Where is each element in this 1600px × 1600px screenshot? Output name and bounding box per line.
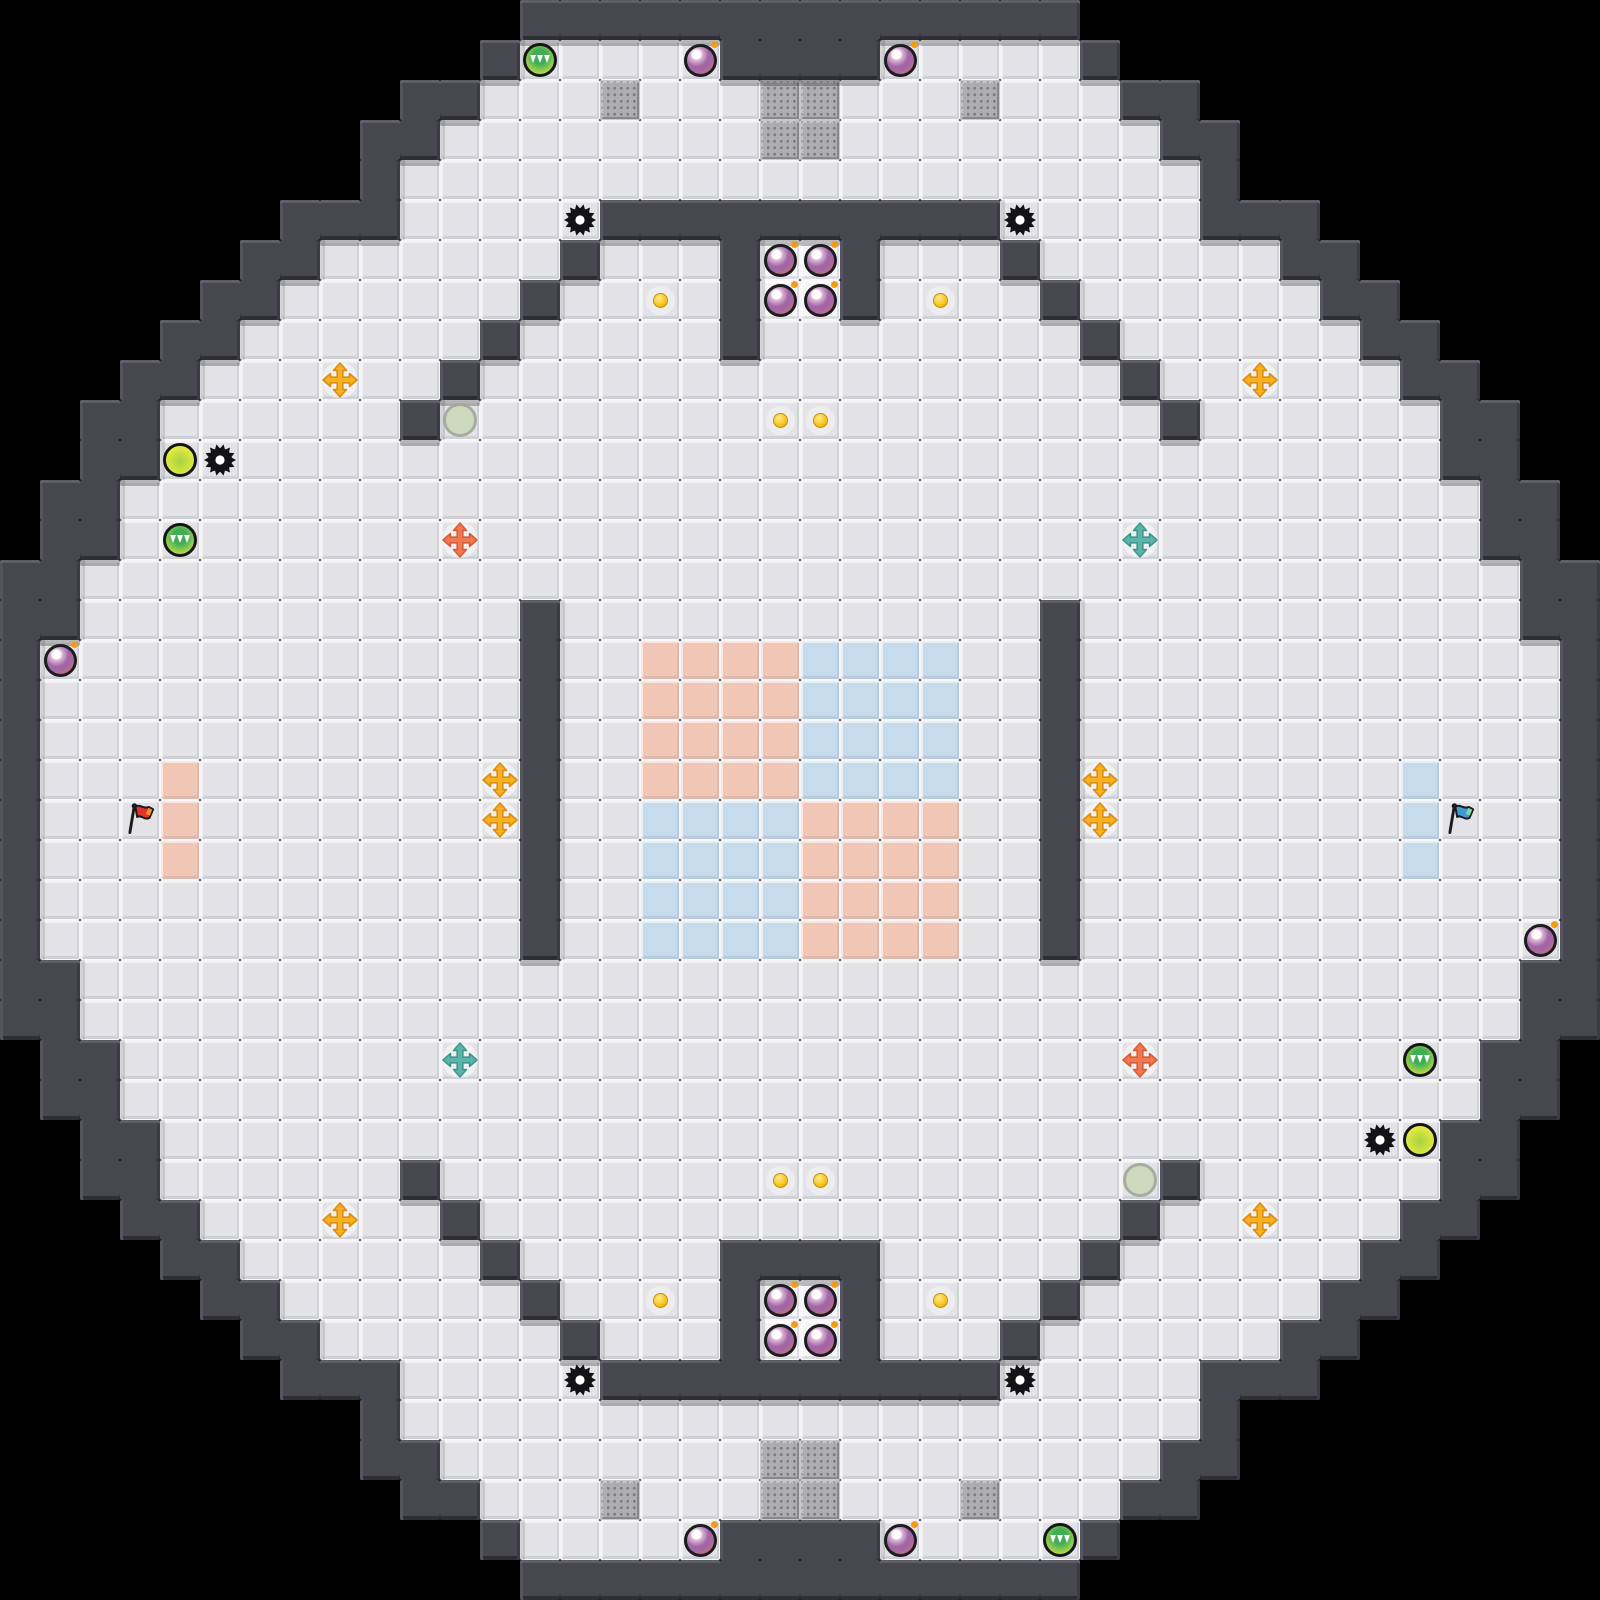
floor-tile xyxy=(1240,1160,1280,1200)
yellow-dot[interactable] xyxy=(760,400,800,440)
floor-tile xyxy=(680,320,720,360)
floor-tile xyxy=(840,1120,880,1160)
floor-tile xyxy=(1480,760,1520,800)
floor-tile xyxy=(720,80,760,120)
floor-tile xyxy=(1000,880,1040,920)
floor-tile xyxy=(160,960,200,1000)
blue-flag-icon[interactable] xyxy=(1440,800,1480,840)
floor-tile xyxy=(1120,1320,1160,1360)
floor-tile xyxy=(680,1240,720,1280)
floor-tile xyxy=(1400,880,1440,920)
floor-tile xyxy=(560,560,600,600)
floor-tile xyxy=(560,1520,600,1560)
wall-tile xyxy=(240,1280,280,1320)
floor-tile xyxy=(200,1080,240,1120)
floor-tile xyxy=(160,1080,200,1120)
powerup-yellow-icon[interactable] xyxy=(1400,1120,1440,1160)
floor-tile xyxy=(1000,520,1040,560)
floor-tile xyxy=(320,1120,360,1160)
floor-tile xyxy=(1000,480,1040,520)
floor-tile xyxy=(280,1280,320,1320)
floor-tile xyxy=(1200,1120,1240,1160)
wall-tile xyxy=(120,440,160,480)
wall-tile xyxy=(80,480,120,520)
floor-tile xyxy=(1120,920,1160,960)
bomb-icon[interactable] xyxy=(760,1280,800,1320)
floor-tile xyxy=(680,360,720,400)
floor-tile xyxy=(320,480,360,520)
bomb-icon[interactable] xyxy=(760,1320,800,1360)
powerup-grip-icon[interactable] xyxy=(1400,1040,1440,1080)
floor-tile xyxy=(840,80,880,120)
red-team-tile xyxy=(640,680,680,720)
floor-tile xyxy=(80,760,120,800)
floor-tile xyxy=(160,400,200,440)
floor-tile xyxy=(80,680,120,720)
floor-tile xyxy=(1040,440,1080,480)
wall-tile xyxy=(1440,360,1480,400)
floor-tile xyxy=(1360,960,1400,1000)
wall-tile xyxy=(40,960,80,1000)
floor-tile xyxy=(1040,40,1080,80)
bomb-icon[interactable] xyxy=(680,40,720,80)
wall-tile xyxy=(840,0,880,40)
powerup-grip-icon[interactable] xyxy=(520,40,560,80)
boost-icon-yellow[interactable] xyxy=(1080,800,1120,840)
boost-icon-yellow[interactable] xyxy=(1240,1200,1280,1240)
floor-tile xyxy=(600,640,640,680)
wall-tile xyxy=(760,1520,800,1560)
wall-tile xyxy=(800,40,840,80)
floor-tile xyxy=(720,1440,760,1480)
powerup-grip-icon[interactable] xyxy=(160,520,200,560)
floor-tile xyxy=(720,600,760,640)
wall-tile xyxy=(1480,520,1520,560)
floor-tile xyxy=(760,1400,800,1440)
wall-tile xyxy=(1040,800,1080,840)
floor-tile xyxy=(840,1400,880,1440)
floor-tile xyxy=(1120,440,1160,480)
floor-tile xyxy=(880,360,920,400)
wall-tile xyxy=(320,1360,360,1400)
red-flag-icon[interactable] xyxy=(120,800,160,840)
wall-tile xyxy=(1200,1440,1240,1480)
gate-tile xyxy=(760,1480,800,1520)
floor-tile xyxy=(960,1440,1000,1480)
floor-tile xyxy=(560,840,600,880)
boost-icon-yellow[interactable] xyxy=(480,760,520,800)
wall-tile xyxy=(880,1360,920,1400)
floor-tile xyxy=(1120,760,1160,800)
floor-tile xyxy=(720,1160,760,1200)
floor-tile xyxy=(400,1240,440,1280)
floor-tile xyxy=(720,480,760,520)
wall-tile xyxy=(1280,200,1320,240)
floor-tile xyxy=(360,720,400,760)
yellow-dot[interactable] xyxy=(920,280,960,320)
wall-tile xyxy=(1480,1040,1520,1080)
wall-tile xyxy=(600,1360,640,1400)
floor-tile xyxy=(1040,520,1080,560)
wall-tile xyxy=(1560,960,1600,1000)
wall-tile xyxy=(440,1480,480,1520)
floor-tile xyxy=(600,960,640,1000)
floor-tile xyxy=(1240,1240,1280,1280)
boost-icon-yellow[interactable] xyxy=(320,360,360,400)
floor-tile xyxy=(680,480,720,520)
floor-tile xyxy=(320,720,360,760)
floor-tile xyxy=(800,1200,840,1240)
wall-tile xyxy=(1240,1360,1280,1400)
floor-tile xyxy=(440,920,480,960)
wall-tile xyxy=(1040,680,1080,720)
floor-tile xyxy=(1320,1040,1360,1080)
floor-tile xyxy=(600,1440,640,1480)
wall-tile xyxy=(160,1240,200,1280)
blue-team-tile xyxy=(760,800,800,840)
floor-tile xyxy=(40,800,80,840)
wall-tile xyxy=(1160,1160,1200,1200)
wall-tile xyxy=(80,1040,120,1080)
bomb-icon[interactable] xyxy=(760,240,800,280)
floor-tile xyxy=(600,1080,640,1120)
floor-tile xyxy=(1040,1360,1080,1400)
floor-tile xyxy=(1520,840,1560,880)
floor-tile xyxy=(200,960,240,1000)
floor-tile xyxy=(1280,1160,1320,1200)
wall-tile xyxy=(40,520,80,560)
floor-tile xyxy=(200,720,240,760)
red-team-tile xyxy=(720,640,760,680)
floor-tile xyxy=(1480,680,1520,720)
floor-tile xyxy=(240,1200,280,1240)
wall-tile xyxy=(520,640,560,680)
spawn-circle xyxy=(440,400,480,440)
floor-tile xyxy=(320,640,360,680)
wall-tile xyxy=(960,200,1000,240)
floor-tile xyxy=(1240,520,1280,560)
wall-tile xyxy=(360,200,400,240)
floor-tile xyxy=(1480,840,1520,880)
floor-tile xyxy=(480,1040,520,1080)
boost-icon-red[interactable] xyxy=(1120,1040,1160,1080)
wall-tile xyxy=(1560,800,1600,840)
floor-tile xyxy=(560,1200,600,1240)
floor-tile xyxy=(480,600,520,640)
floor-tile xyxy=(480,80,520,120)
wall-tile xyxy=(360,120,400,160)
wall-tile xyxy=(400,80,440,120)
floor-tile xyxy=(1000,560,1040,600)
floor-tile xyxy=(440,840,480,880)
floor-tile xyxy=(1160,1000,1200,1040)
bomb-icon[interactable] xyxy=(1520,920,1560,960)
floor-tile xyxy=(1240,680,1280,720)
floor-tile xyxy=(1160,600,1200,640)
floor-tile xyxy=(80,920,120,960)
floor-tile xyxy=(480,840,520,880)
boost-icon-yellow[interactable] xyxy=(320,1200,360,1240)
bomb-icon[interactable] xyxy=(680,1520,720,1560)
floor-tile xyxy=(320,520,360,560)
floor-tile xyxy=(1080,120,1120,160)
floor-tile xyxy=(1280,600,1320,640)
yellow-dot[interactable] xyxy=(760,1160,800,1200)
floor-tile xyxy=(760,560,800,600)
floor-tile xyxy=(920,520,960,560)
floor-tile xyxy=(960,920,1000,960)
floor-tile xyxy=(440,480,480,520)
floor-tile xyxy=(1200,1080,1240,1120)
floor-tile xyxy=(400,480,440,520)
floor-tile xyxy=(600,800,640,840)
gate-tile xyxy=(800,1440,840,1480)
bomb-icon[interactable] xyxy=(880,40,920,80)
wall-tile xyxy=(0,600,40,640)
yellow-dot[interactable] xyxy=(800,400,840,440)
floor-tile xyxy=(400,200,440,240)
floor-tile xyxy=(280,480,320,520)
floor-tile xyxy=(1480,800,1520,840)
floor-tile xyxy=(1120,640,1160,680)
floor-tile xyxy=(1000,600,1040,640)
bomb-icon[interactable] xyxy=(760,280,800,320)
floor-tile xyxy=(880,240,920,280)
boost-icon-blue[interactable] xyxy=(440,1040,480,1080)
yellow-dot[interactable] xyxy=(640,280,680,320)
floor-tile xyxy=(920,960,960,1000)
floor-tile xyxy=(1240,1120,1280,1160)
floor-tile xyxy=(880,1400,920,1440)
floor-tile xyxy=(1120,720,1160,760)
floor-tile xyxy=(1160,560,1200,600)
boost-icon-red[interactable] xyxy=(440,520,480,560)
blue-team-tile xyxy=(800,760,840,800)
floor-tile xyxy=(1120,800,1160,840)
floor-tile xyxy=(1360,1200,1400,1240)
floor-tile xyxy=(1320,1120,1360,1160)
wall-tile xyxy=(1040,1560,1080,1600)
floor-tile xyxy=(1000,160,1040,200)
wall-tile xyxy=(1040,640,1080,680)
floor-tile xyxy=(1000,1160,1040,1200)
boost-icon-yellow[interactable] xyxy=(480,800,520,840)
bomb-icon[interactable] xyxy=(880,1520,920,1560)
wall-tile xyxy=(960,1360,1000,1400)
floor-tile xyxy=(960,1280,1000,1320)
bomb-icon[interactable] xyxy=(800,280,840,320)
wall-tile xyxy=(360,1400,400,1440)
wall-tile xyxy=(1080,1520,1120,1560)
wall-tile xyxy=(1000,1320,1040,1360)
floor-tile xyxy=(720,1040,760,1080)
wall-tile xyxy=(160,1200,200,1240)
red-team-tile xyxy=(760,680,800,720)
floor-tile xyxy=(880,600,920,640)
floor-tile xyxy=(1360,1040,1400,1080)
floor-tile xyxy=(1240,1080,1280,1120)
floor-tile xyxy=(1360,1080,1400,1120)
floor-tile xyxy=(160,1040,200,1080)
floor-tile xyxy=(1040,80,1080,120)
floor-tile xyxy=(520,200,560,240)
floor-tile xyxy=(960,400,1000,440)
wall-tile xyxy=(560,1320,600,1360)
floor-tile xyxy=(680,1000,720,1040)
floor-tile xyxy=(600,760,640,800)
floor-tile xyxy=(1160,440,1200,480)
yellow-dot[interactable] xyxy=(920,1280,960,1320)
floor-tile xyxy=(1360,920,1400,960)
red-team-tile xyxy=(720,680,760,720)
wall-tile xyxy=(1520,600,1560,640)
floor-tile xyxy=(1440,840,1480,880)
spike-icon xyxy=(560,200,600,240)
floor-tile xyxy=(400,1040,440,1080)
wall-tile xyxy=(720,1560,760,1600)
floor-tile xyxy=(1320,1160,1360,1200)
floor-tile xyxy=(240,880,280,920)
wall-tile xyxy=(640,1560,680,1600)
floor-tile xyxy=(600,720,640,760)
floor-tile xyxy=(120,1040,160,1080)
wall-tile xyxy=(760,40,800,80)
boost-icon-blue[interactable] xyxy=(1120,520,1160,560)
floor-tile xyxy=(600,520,640,560)
floor-tile xyxy=(1240,1000,1280,1040)
wall-tile xyxy=(640,0,680,40)
wall-tile xyxy=(1440,440,1480,480)
wall-tile xyxy=(880,0,920,40)
floor-tile xyxy=(880,1440,920,1480)
powerup-yellow-icon[interactable] xyxy=(160,440,200,480)
floor-tile xyxy=(80,640,120,680)
floor-tile xyxy=(1080,600,1120,640)
floor-tile xyxy=(1120,320,1160,360)
floor-tile xyxy=(1520,880,1560,920)
wall-tile xyxy=(1560,840,1600,880)
bomb-icon[interactable] xyxy=(800,240,840,280)
floor-tile xyxy=(600,400,640,440)
floor-tile xyxy=(960,800,1000,840)
wall-tile xyxy=(840,1320,880,1360)
bomb-icon[interactable] xyxy=(800,1320,840,1360)
wall-tile xyxy=(920,1360,960,1400)
wall-tile xyxy=(1560,720,1600,760)
floor-tile xyxy=(1400,520,1440,560)
floor-tile xyxy=(400,880,440,920)
floor-tile xyxy=(200,1160,240,1200)
floor-tile xyxy=(880,80,920,120)
floor-tile xyxy=(480,240,520,280)
floor-tile xyxy=(480,880,520,920)
wall-tile xyxy=(840,1560,880,1600)
bomb-icon[interactable] xyxy=(800,1280,840,1320)
wall-tile xyxy=(200,280,240,320)
floor-tile xyxy=(360,360,400,400)
floor-tile xyxy=(1520,760,1560,800)
wall-tile xyxy=(0,640,40,680)
floor-tile xyxy=(1200,520,1240,560)
floor-tile xyxy=(920,160,960,200)
wall-tile xyxy=(760,1360,800,1400)
floor-tile xyxy=(1080,1400,1120,1440)
floor-tile xyxy=(600,160,640,200)
floor-tile xyxy=(360,1080,400,1120)
floor-tile xyxy=(1280,840,1320,880)
wall-tile xyxy=(1560,640,1600,680)
floor-tile xyxy=(1360,800,1400,840)
floor-tile xyxy=(1280,800,1320,840)
floor-tile xyxy=(680,960,720,1000)
floor-tile xyxy=(280,880,320,920)
floor-tile xyxy=(1440,480,1480,520)
floor-tile xyxy=(1080,1320,1120,1360)
floor-tile xyxy=(440,600,480,640)
floor-tile xyxy=(1240,440,1280,480)
floor-tile xyxy=(360,1200,400,1240)
floor-tile xyxy=(520,560,560,600)
floor-tile xyxy=(1360,520,1400,560)
floor-tile xyxy=(1440,560,1480,600)
floor-tile xyxy=(1160,1280,1200,1320)
wall-tile xyxy=(80,1120,120,1160)
boost-icon-yellow[interactable] xyxy=(1080,760,1120,800)
yellow-dot[interactable] xyxy=(640,1280,680,1320)
bomb-icon[interactable] xyxy=(40,640,80,680)
floor-tile xyxy=(760,1080,800,1120)
floor-tile xyxy=(440,800,480,840)
red-team-tile xyxy=(880,800,920,840)
floor-tile xyxy=(1320,760,1360,800)
boost-icon-yellow[interactable] xyxy=(1240,360,1280,400)
yellow-dot[interactable] xyxy=(800,1160,840,1200)
floor-tile xyxy=(920,1000,960,1040)
floor-tile xyxy=(440,1400,480,1440)
floor-tile xyxy=(920,240,960,280)
floor-tile xyxy=(200,400,240,440)
floor-tile xyxy=(400,720,440,760)
floor-tile xyxy=(1080,560,1120,600)
powerup-grip-icon[interactable] xyxy=(1040,1520,1080,1560)
wall-tile xyxy=(1120,80,1160,120)
floor-tile xyxy=(720,960,760,1000)
floor-tile xyxy=(440,760,480,800)
floor-tile xyxy=(1080,520,1120,560)
floor-tile xyxy=(1360,440,1400,480)
floor-tile xyxy=(320,920,360,960)
floor-tile xyxy=(1280,1000,1320,1040)
floor-tile xyxy=(720,1200,760,1240)
floor-tile xyxy=(640,1480,680,1520)
floor-tile xyxy=(80,960,120,1000)
floor-tile xyxy=(560,680,600,720)
wall-tile xyxy=(120,400,160,440)
floor-tile xyxy=(1440,1080,1480,1120)
floor-tile xyxy=(480,440,520,480)
floor-tile xyxy=(760,1200,800,1240)
floor-tile xyxy=(1200,240,1240,280)
floor-tile xyxy=(1160,720,1200,760)
red-team-tile xyxy=(800,880,840,920)
floor-tile xyxy=(440,880,480,920)
floor-tile xyxy=(1360,400,1400,440)
blue-team-tile xyxy=(840,760,880,800)
floor-tile xyxy=(760,1040,800,1080)
floor-tile xyxy=(800,1400,840,1440)
floor-tile xyxy=(1000,40,1040,80)
floor-tile xyxy=(200,680,240,720)
